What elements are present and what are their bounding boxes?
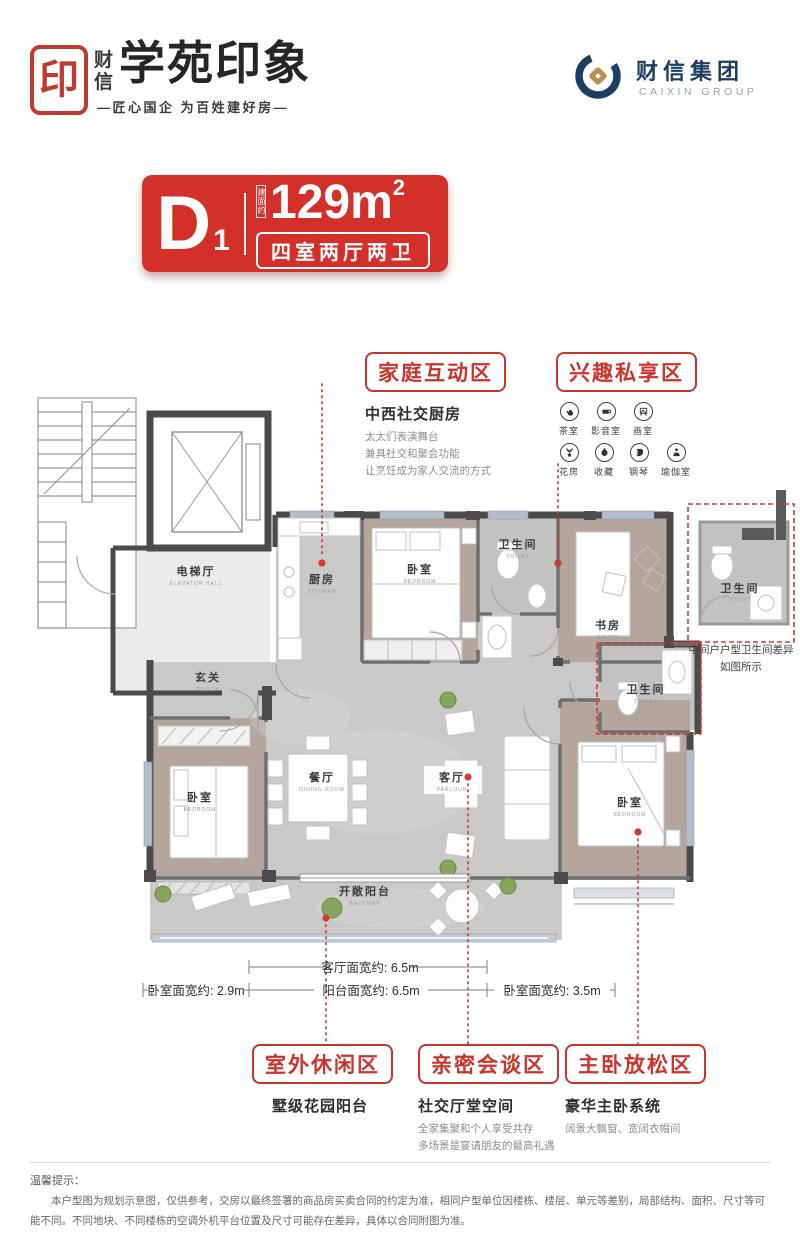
area-value: 129m [270, 179, 393, 227]
inset-note-line2: 如图所示 [720, 660, 762, 673]
room-label-en: TOILET [506, 554, 529, 560]
room-label-living: 客厅 [438, 770, 465, 784]
room-label-en: STUDY [597, 635, 619, 641]
callout-outdoor-subtitle: 墅级花园阳台 [252, 1095, 388, 1116]
dim-balcony-width: 阳台面宽约: 6.5m [322, 983, 419, 998]
callout-master-subtitle: 豪华主卧系统 [565, 1095, 735, 1116]
room-label-toilet-mid: 卫生间 [627, 682, 666, 696]
brand-tagline: —匠心国企 为百姓建好房— [97, 97, 289, 116]
layout-label: 四室两厅两卫 [256, 232, 430, 269]
room-label-en: BEDROOM [404, 579, 437, 585]
callout-master-title: 主卧放松区 [565, 1044, 706, 1084]
callout-outdoor-title: 室外休闲区 [252, 1044, 393, 1084]
callout-social-subtitle: 社交厅堂空间 [418, 1095, 578, 1116]
room-label-en: TOILET [728, 597, 751, 603]
callout-social-line: 多场景是宴请朋友的最高礼遇 [418, 1138, 578, 1155]
inset-note-line1: 中间户户型卫生间差异 [689, 643, 794, 656]
room-label-en: ELEVATOR HALL [170, 581, 223, 587]
callout-social-line: 全家集聚和个人享受共存 [418, 1121, 578, 1138]
dim-bedroom-left-width: 卧室面宽约: 2.9m [147, 983, 244, 998]
floorplan-poster: 印 财信 学苑印象 —匠心国企 为百姓建好房— 财信集团 CAIXIN GROU… [0, 0, 800, 1257]
room-label-toilet-top: 卫生间 [499, 537, 538, 551]
room-label-en: PORCH [196, 687, 219, 693]
elevator-shaft [150, 414, 268, 548]
brand-seal-logo: 印 [30, 45, 88, 115]
callout-outdoor: 室外休闲区 墅级花园阳台 [252, 1044, 388, 1116]
disclaimer-text: 本户型图为规划示意图，仅供参考，交房以最终签署的商品房买卖合同的约定为准，相同户… [30, 1192, 770, 1232]
room-label-en: BALCONY [350, 901, 381, 907]
disclaimer: 温馨提示： 本户型图为规划示意图，仅供参考，交房以最终签署的商品房买卖合同的约定… [30, 1162, 770, 1232]
room-label-en: KITCHEN [308, 589, 337, 595]
room-label-bedroom-left: 卧室 [187, 790, 213, 804]
callout-social: 亲密会谈区 社交厅堂空间 全家集聚和个人享受共存 多场景是宴请朋友的最高礼遇 [418, 1044, 578, 1155]
caixin-group-ring-icon [572, 47, 624, 110]
callout-master: 主卧放松区 豪华主卧系统 阔景大飘窗、宽阔衣帽间 [565, 1044, 735, 1138]
room-label-balcony: 开敞阳台 [339, 884, 391, 898]
unit-number: 1 [213, 224, 230, 258]
project-title: 学苑印象 [119, 40, 311, 86]
room-label-en: TOILET [634, 699, 657, 705]
disclaimer-label: 温馨提示： [30, 1172, 770, 1188]
room-label-bedroom-top: 卧室 [407, 562, 433, 576]
brand-vertical-name: 财信 [94, 50, 116, 95]
floorplan: 电梯厅 玄关 厨房 卧室 卫生间 书房 卫生间 餐厅 客厅 卧室 卧室 开敞阳台… [0, 382, 800, 1062]
room-label-kitchen: 厨房 [309, 572, 335, 586]
group-name-en: CAIXIN GROUP [639, 86, 757, 98]
callout-master-line: 阔景大飘窗、宽阔衣帽间 [565, 1121, 735, 1138]
dim-living-width: 客厅面宽约: 6.5m [321, 960, 418, 975]
room-label-porch: 玄关 [195, 670, 221, 684]
room-label-study: 书房 [595, 618, 621, 632]
seal-character: 印 [39, 60, 79, 100]
room-label-en: BEDROOM [614, 812, 647, 818]
group-name: 财信集团 [636, 54, 744, 86]
room-label-en: BEDROOM [184, 807, 217, 813]
area-prefix-label: 建面约 [256, 185, 266, 218]
callout-social-title: 亲密会谈区 [418, 1044, 559, 1084]
dim-bedroom-master-width: 卧室面宽约: 3.5m [503, 983, 600, 998]
room-label-bedroom-master: 卧室 [617, 795, 643, 809]
room-label-en: PARLOUR [437, 787, 468, 793]
room-label-dining: 餐厅 [308, 770, 335, 784]
room-label-en: DINING ROOM [299, 787, 344, 793]
room-label-elevator-hall: 电梯厅 [177, 564, 216, 578]
room-label-toilet-inset: 卫生间 [721, 581, 760, 595]
unit-letter: D [156, 189, 211, 259]
area-superscript: 2 [393, 177, 405, 199]
stairwell [38, 398, 136, 628]
unit-badge: D 1 建面约 129m 2 四室两厅两卫 [142, 175, 448, 272]
unit-code: D 1 [142, 189, 244, 259]
